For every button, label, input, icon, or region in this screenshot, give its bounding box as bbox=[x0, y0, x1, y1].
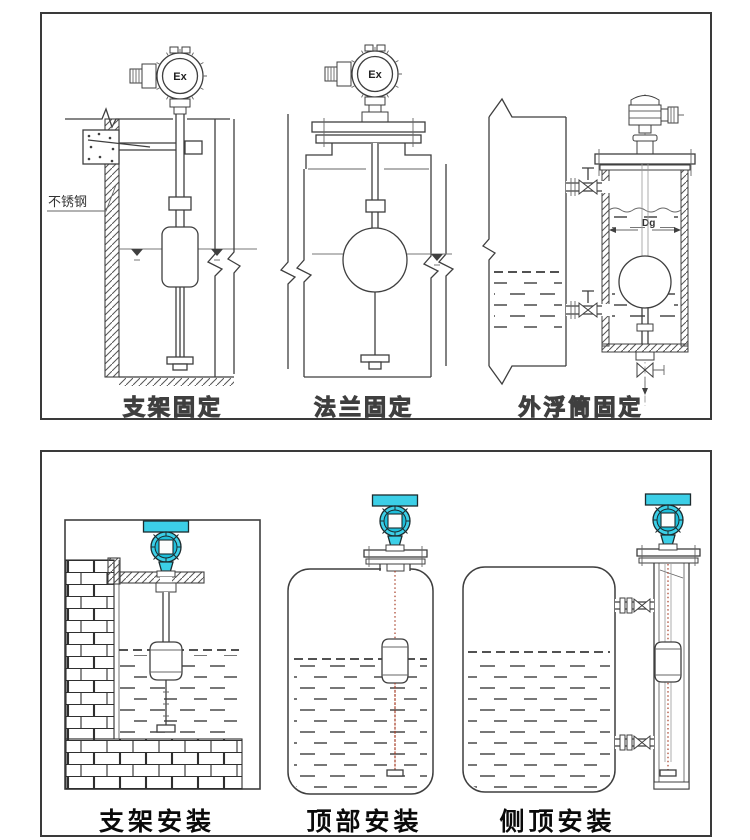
tank-liquid bbox=[494, 276, 562, 328]
tank-wall-left bbox=[297, 169, 311, 377]
float-ball bbox=[343, 228, 407, 292]
installation-diagram-sheet: Ex 不锈钢 bbox=[0, 0, 750, 840]
transmitter-icon bbox=[144, 521, 189, 577]
connecting-valve-top-icon bbox=[615, 598, 654, 613]
ex-transmitter-icon: Ex bbox=[130, 47, 207, 103]
diagram-bracket-installation bbox=[65, 520, 260, 789]
transmitter-cap bbox=[373, 495, 418, 506]
diagram-bracket-fixing: Ex 不锈钢 bbox=[47, 47, 257, 386]
liquid bbox=[294, 664, 427, 788]
transmitter-neck bbox=[159, 562, 173, 571]
rod-stopper-nub bbox=[369, 362, 381, 369]
display-window bbox=[661, 513, 675, 527]
chamber-bottom bbox=[602, 344, 688, 352]
label-bracket-fixing: 支架固定 bbox=[98, 390, 248, 422]
stem-coupling bbox=[169, 197, 191, 210]
label-side-top-installation: 侧顶安装 bbox=[480, 802, 635, 838]
chamber-wall-right bbox=[681, 170, 688, 346]
fixing-methods-drawing: Ex 不锈钢 bbox=[42, 14, 710, 418]
installation-styles-drawing bbox=[42, 452, 710, 835]
ceiling-line bbox=[65, 109, 230, 127]
head-neck-2 bbox=[174, 107, 186, 114]
ex-marking: Ex bbox=[173, 71, 187, 83]
rod-coupling bbox=[366, 200, 385, 212]
tank-wall-left bbox=[483, 117, 495, 366]
liquid bbox=[468, 657, 610, 790]
floor-hatch bbox=[119, 378, 234, 386]
cable-gland bbox=[661, 109, 668, 121]
head-base bbox=[362, 112, 388, 122]
diagram-flange-fixing: Ex bbox=[281, 45, 453, 377]
chamber-liquid-surface bbox=[609, 208, 681, 212]
label-bracket-installation: 支架安装 bbox=[82, 802, 232, 838]
float-capsule bbox=[655, 642, 681, 682]
fixing-methods-panel: Ex 不锈钢 bbox=[40, 12, 712, 420]
rod-stopper bbox=[157, 725, 175, 732]
flange-coupling bbox=[387, 564, 404, 571]
tank-top-break bbox=[489, 99, 566, 117]
rod-stopper bbox=[660, 770, 676, 776]
display-window bbox=[388, 514, 402, 528]
rod-collar bbox=[637, 324, 653, 331]
ex-transmitter-icon: Ex bbox=[325, 45, 402, 101]
rod-stopper-nub bbox=[173, 364, 187, 370]
svg-text:不锈钢: 不锈钢 bbox=[48, 194, 87, 209]
head-neck bbox=[170, 99, 190, 107]
mounting-flange bbox=[312, 118, 425, 147]
diagram-side-top-installation bbox=[463, 494, 700, 792]
transmitter-icon bbox=[373, 495, 418, 551]
bracket-wall-plate bbox=[108, 558, 120, 584]
transmitter-neck bbox=[661, 535, 675, 544]
transmitter-icon bbox=[646, 494, 691, 550]
float-ball bbox=[619, 256, 671, 308]
rod-stopper bbox=[387, 770, 403, 776]
ex-marking: Ex bbox=[368, 69, 382, 81]
tank-bottom-break bbox=[489, 366, 566, 384]
transmitter-cap bbox=[646, 494, 691, 505]
drain-valve-icon bbox=[636, 352, 664, 395]
brick-wall bbox=[66, 560, 114, 739]
stem-through-shelf bbox=[160, 577, 172, 583]
float-capsule bbox=[150, 642, 182, 680]
installation-styles-panel: 支架安装 顶部安装 侧顶安装 bbox=[40, 450, 712, 837]
junction-box-transmitter bbox=[629, 96, 684, 155]
connecting-valve-bottom-icon bbox=[615, 735, 654, 750]
float-ball bbox=[162, 227, 198, 287]
transmitter-neck bbox=[388, 536, 402, 545]
tank-shoulders bbox=[306, 143, 431, 169]
head-neck-2 bbox=[369, 105, 381, 112]
tank-wall-break-inner bbox=[208, 119, 222, 377]
label-flange-fixing: 法兰固定 bbox=[289, 390, 439, 422]
brick-floor bbox=[66, 739, 242, 789]
rod-stopper bbox=[361, 355, 389, 362]
diameter-label: Dg bbox=[642, 218, 655, 229]
chamber-bottom bbox=[654, 782, 689, 789]
diagram-top-installation bbox=[288, 495, 433, 794]
float-capsule bbox=[382, 639, 408, 683]
stem-coupling bbox=[156, 583, 176, 592]
head-neck bbox=[365, 97, 385, 105]
transmitter-cap bbox=[144, 521, 189, 532]
chamber-wall-left bbox=[602, 170, 609, 346]
tank-wall-right-outer bbox=[439, 164, 453, 366]
rod-stopper bbox=[167, 357, 193, 364]
diagram-external-chamber-fixing: Dg bbox=[483, 94, 695, 406]
tank-wall-right bbox=[424, 169, 438, 377]
tank-wall-break-outer bbox=[228, 119, 240, 374]
label-external-chamber-fixing: 外浮筒固定 bbox=[486, 390, 676, 422]
label-top-installation: 顶部安装 bbox=[287, 802, 442, 838]
display-window bbox=[159, 540, 173, 554]
tank-wall-left-outer bbox=[281, 114, 295, 369]
